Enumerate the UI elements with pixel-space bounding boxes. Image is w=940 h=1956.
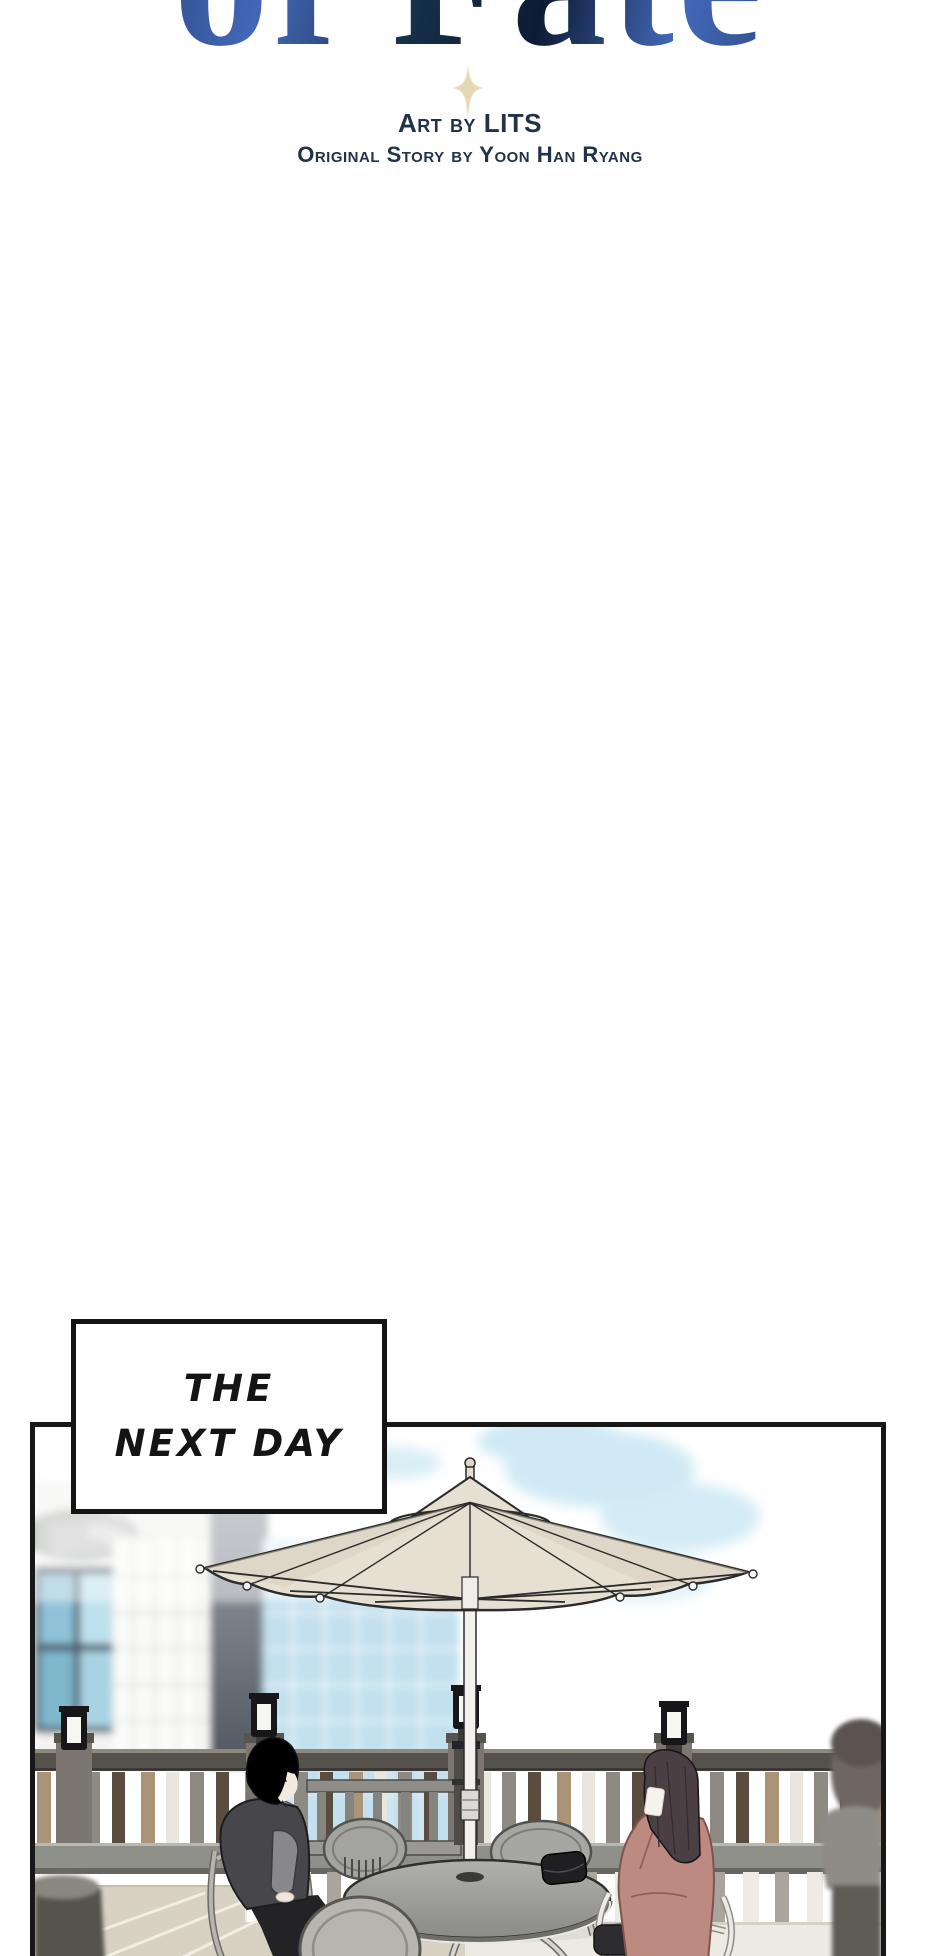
credit-art: Art by LITS	[0, 108, 940, 139]
foreground-chair-blob	[35, 1875, 105, 1956]
webtoon-page: of Fate Art by LITS Original Story by Yo…	[0, 0, 940, 1956]
credit-story: Original Story by Yoon Han Ryang	[0, 142, 940, 168]
caption-line-2: NEXT DAY	[76, 1425, 382, 1462]
lamp-post-left	[59, 1706, 89, 1750]
caption-box: THE NEXT DAY	[71, 1319, 387, 1514]
black-purse	[541, 1851, 588, 1885]
white-face-patch	[644, 1787, 665, 1816]
caption-line-1: THE	[76, 1370, 382, 1407]
